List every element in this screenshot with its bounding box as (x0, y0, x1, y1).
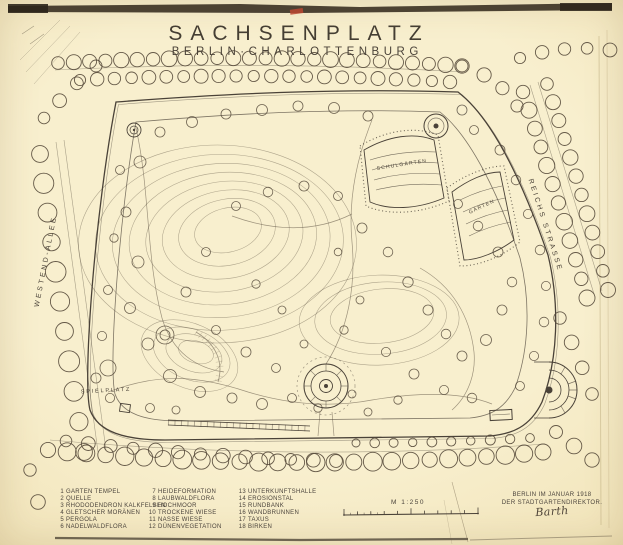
legend-item: 13UNTERKUNFTSHALLE (238, 489, 338, 496)
imprint-place-date: BERLIN IM JANUAR 1918 (488, 492, 616, 500)
legend-item: 2QUELLE (56, 496, 144, 503)
legend-item: 9HOCHMOOR (148, 503, 234, 510)
scale-bar (343, 508, 479, 516)
legend-item: 11NASSE WIESE (148, 517, 234, 524)
plan-title: SACHSENPLATZ (135, 22, 455, 46)
legend-item: 18BIRKEN (238, 524, 338, 531)
legend-item: 1GARTEN TEMPEL (56, 489, 144, 496)
perimeter-tree-rows (24, 43, 617, 510)
pergola (168, 420, 310, 431)
park-trees (91, 101, 551, 416)
park-boundary (88, 91, 559, 443)
legend: 1GARTEN TEMPEL 2QUELLE 3RHODODENDRON KAL… (56, 489, 338, 530)
legend-item: 14EROSIONSTAL (238, 496, 338, 503)
exedra (534, 362, 577, 418)
plan-subtitle: BERLIN·CHARLOTTENBURG (135, 46, 455, 58)
legend-column-3: 13UNTERKUNFTSHALLE 14EROSIONSTAL 15RUNDB… (238, 489, 338, 530)
legend-item: 12DÜNENVEGETATION (148, 524, 234, 531)
scale-label: M 1:250 (368, 499, 448, 506)
park-plan-drawing (0, 0, 623, 545)
legend-column-2: 7HEIDEFORMATION 8LAUBWALDFLORA 9HOCHMOOR… (148, 489, 234, 530)
legend-item: 4GLETSCHER MORÄNEN (56, 510, 144, 517)
legend-column-1: 1GARTEN TEMPEL 2QUELLE 3RHODODENDRON KAL… (56, 489, 144, 530)
legend-item: 3RHODODENDRON KALKFELSEN (56, 503, 144, 510)
legend-item: 10TROCKENE WIESE (148, 510, 234, 517)
legend-item: 5PERGOLA (56, 517, 144, 524)
legend-item: 15RUNDBANK (238, 503, 338, 510)
legend-item: 7HEIDEFORMATION (148, 489, 234, 496)
school-garden-fan (360, 105, 520, 266)
legend-item: 17TAXUS (238, 517, 338, 524)
legend-item: 8LAUBWALDFLORA (148, 496, 234, 503)
legend-item: 16WANDBRUNNEN (238, 510, 338, 517)
interior-paths (108, 120, 492, 436)
scan-artifacts (8, 3, 612, 544)
contour-lines (79, 145, 461, 406)
scanned-park-plan: SACHSENPLATZ BERLIN·CHARLOTTENBURG WESTE… (0, 0, 623, 545)
legend-item: 6NADELWALDFLORA (56, 524, 144, 531)
fountain-plaza (297, 357, 355, 415)
imprint-block: BERLIN IM JANUAR 1918 DER STADTGARTENDIR… (488, 492, 616, 516)
